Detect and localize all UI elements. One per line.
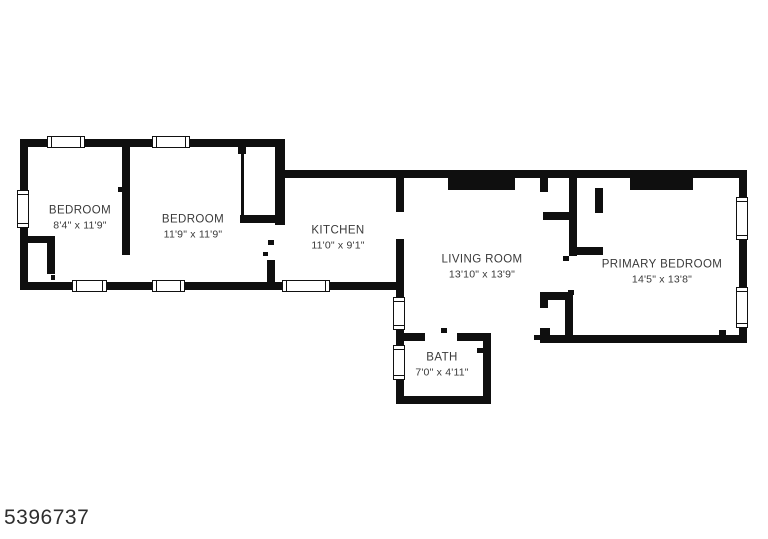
wall bbox=[396, 245, 404, 297]
door-jamb-tick bbox=[51, 275, 55, 280]
wall bbox=[404, 333, 425, 341]
door-jamb-tick bbox=[477, 348, 483, 353]
room-dimensions: 13'10" x 13'9" bbox=[441, 269, 522, 281]
room-name: BEDROOM bbox=[49, 205, 111, 217]
window bbox=[393, 345, 405, 380]
wall bbox=[275, 170, 747, 178]
room-label-kitchen: KITCHEN11'0" x 9'1" bbox=[311, 225, 364, 252]
door-jamb-tick bbox=[563, 256, 569, 261]
window bbox=[152, 280, 185, 292]
wall bbox=[47, 243, 55, 274]
door-jamb-tick bbox=[268, 240, 274, 245]
wall bbox=[122, 250, 130, 255]
wall bbox=[565, 300, 573, 337]
room-label-primary-bedroom: PRIMARY BEDROOM14'5" x 13'8" bbox=[602, 259, 723, 286]
wall bbox=[540, 328, 550, 336]
room-name: BATH bbox=[415, 352, 468, 364]
wall bbox=[448, 178, 515, 190]
wall bbox=[122, 147, 130, 250]
wall bbox=[457, 333, 491, 341]
room-name: LIVING ROOM bbox=[441, 254, 522, 266]
window bbox=[393, 297, 405, 330]
room-label-bath: BATH7'0" x 4'11" bbox=[415, 352, 468, 379]
room-name: BEDROOM bbox=[162, 214, 224, 226]
door-jamb-tick bbox=[263, 252, 268, 256]
door-jamb-tick bbox=[719, 330, 726, 335]
window bbox=[72, 280, 107, 292]
wall bbox=[483, 333, 491, 404]
wall bbox=[396, 178, 404, 212]
window bbox=[47, 136, 85, 148]
door-jamb-tick bbox=[568, 290, 574, 295]
wall bbox=[540, 292, 548, 308]
room-dimensions: 8'4" x 11'9" bbox=[49, 220, 111, 232]
window bbox=[736, 197, 748, 240]
wall bbox=[241, 150, 244, 215]
door-jamb-tick bbox=[441, 328, 447, 333]
room-name: PRIMARY BEDROOM bbox=[602, 259, 723, 271]
room-name: KITCHEN bbox=[311, 225, 364, 237]
wall bbox=[569, 178, 577, 256]
door-jamb-tick bbox=[534, 335, 540, 340]
room-dimensions: 14'5" x 13'8" bbox=[602, 274, 723, 286]
door-jamb-tick bbox=[118, 187, 123, 192]
window bbox=[152, 136, 190, 148]
floorplan-canvas: BEDROOM8'4" x 11'9"BEDROOM11'9" x 11'9"K… bbox=[0, 0, 768, 539]
room-dimensions: 11'0" x 9'1" bbox=[311, 240, 364, 252]
wall bbox=[595, 188, 603, 213]
wall bbox=[540, 178, 548, 192]
wall bbox=[267, 260, 275, 290]
room-label-bedroom-2: BEDROOM11'9" x 11'9" bbox=[162, 214, 224, 241]
wall bbox=[396, 396, 491, 404]
window bbox=[282, 280, 330, 292]
window bbox=[736, 287, 748, 328]
wall bbox=[630, 178, 693, 190]
wall bbox=[396, 330, 404, 345]
room-dimensions: 7'0" x 4'11" bbox=[415, 367, 468, 379]
room-dimensions: 11'9" x 11'9" bbox=[162, 229, 224, 241]
room-label-living-room: LIVING ROOM13'10" x 13'9" bbox=[441, 254, 522, 281]
wall bbox=[275, 139, 285, 225]
room-label-bedroom-1: BEDROOM8'4" x 11'9" bbox=[49, 205, 111, 232]
plan-number: 5396737 bbox=[4, 506, 89, 530]
wall bbox=[570, 247, 603, 255]
window bbox=[17, 190, 29, 228]
wall bbox=[543, 212, 569, 220]
wall bbox=[20, 236, 55, 243]
